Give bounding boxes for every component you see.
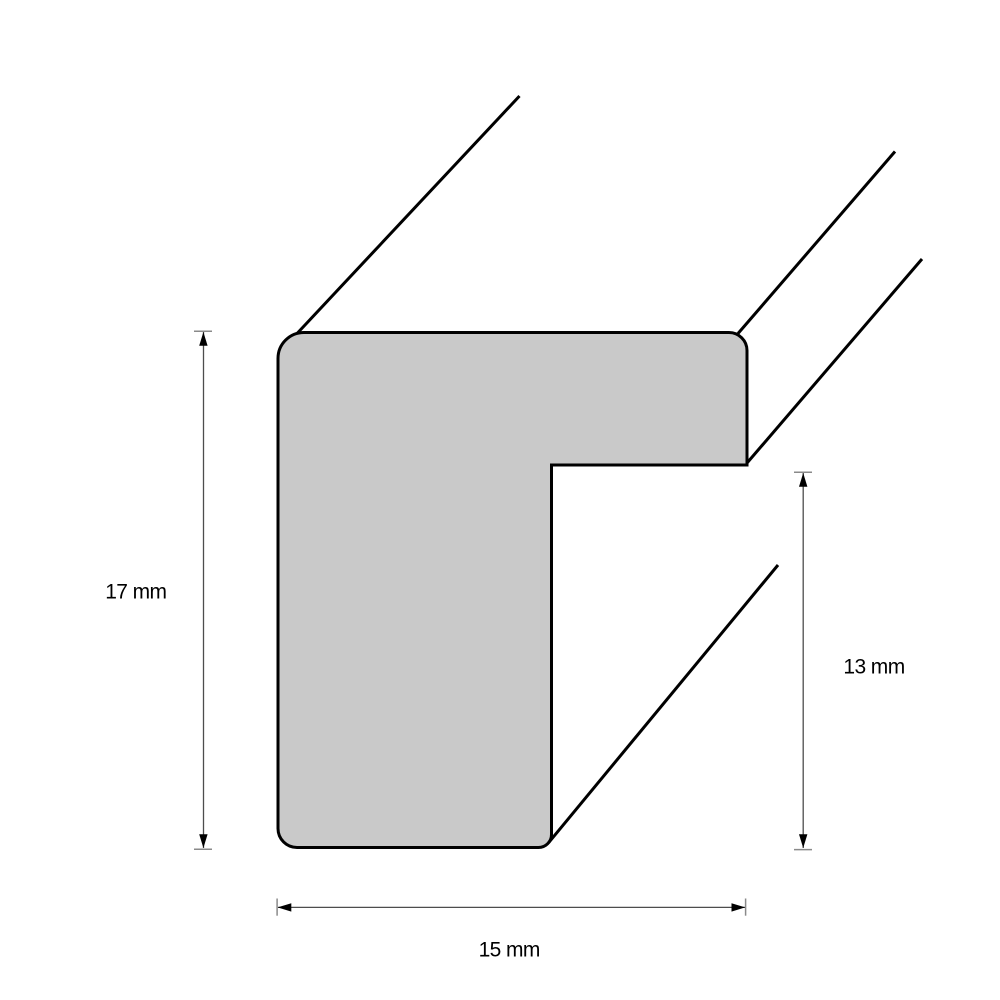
svg-text:15 mm: 15 mm	[479, 938, 540, 961]
svg-text:17 mm: 17 mm	[105, 580, 166, 603]
svg-text:13 mm: 13 mm	[843, 656, 904, 679]
